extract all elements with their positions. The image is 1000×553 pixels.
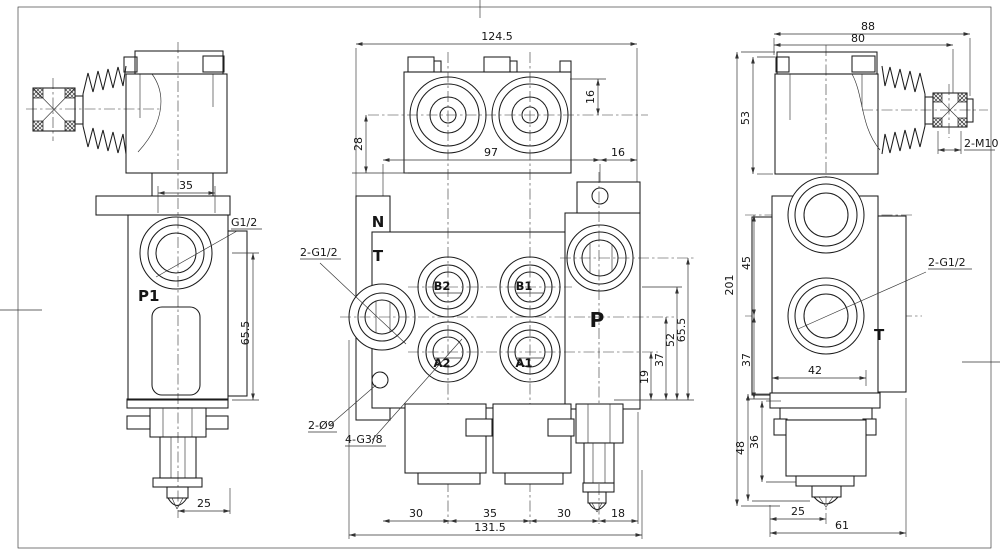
- label-g12: G1/2: [231, 216, 257, 229]
- label-t-right: T: [874, 326, 885, 344]
- dim-25-left: 25: [197, 497, 211, 510]
- dim-35-left: 35: [179, 179, 193, 192]
- relief-valve-side: [127, 399, 228, 509]
- dim-16-vert: 16: [584, 90, 597, 104]
- valve-body-right: [752, 177, 906, 395]
- dim-131-5: 131.5: [474, 521, 506, 534]
- dim-36: 36: [748, 435, 761, 449]
- label-p: P: [590, 308, 605, 332]
- valve-body-side: [96, 196, 247, 400]
- dim-18: 18: [611, 507, 625, 520]
- lever-housing: [124, 51, 227, 196]
- label-2-g12: 2-G1/2: [300, 246, 338, 259]
- bellows: [83, 66, 126, 154]
- label-2-m10: 2-M10: [964, 137, 998, 150]
- label-a1: A1: [516, 356, 533, 370]
- relief-valve-front: [576, 404, 623, 512]
- lever-housing-right: [775, 52, 880, 174]
- left-view: 35 G1/2 P1 65.5 25: [26, 42, 262, 518]
- engineering-drawing-sheet: 35 G1/2 P1 65.5 25 124.5 28 16 97: [0, 0, 1000, 553]
- dim-25-right: 25: [791, 505, 805, 518]
- relief-valve-right: [770, 393, 880, 507]
- dim-65-5-mid: 65.5: [675, 318, 688, 343]
- lever-pivot-section: [33, 88, 83, 131]
- dim-16-horiz: 16: [611, 146, 625, 159]
- dim-61: 61: [835, 519, 849, 532]
- m10-dimension: 2-M10: [938, 131, 998, 154]
- dim-42: 42: [808, 364, 822, 377]
- label-b1: B1: [516, 279, 533, 293]
- right-view: 2-M10 88 80 53 2-G1/2 T: [723, 20, 998, 537]
- dim-30a: 30: [409, 507, 423, 520]
- label-2-g12-right: 2-G1/2: [928, 256, 966, 269]
- dim-37-mid: 37: [653, 353, 666, 367]
- label-4-g38: 4-G3/8: [345, 433, 383, 446]
- dim-201: 201: [723, 275, 736, 296]
- dim-124-5: 124.5: [481, 30, 513, 43]
- dim-35-mid: 35: [483, 507, 497, 520]
- dim-19: 19: [638, 370, 651, 384]
- dim-65-5-left: 65.5: [239, 321, 252, 346]
- dim-37-right: 37: [740, 353, 753, 367]
- label-2-d9: 2-Ø9: [308, 419, 335, 432]
- label-n: N: [372, 213, 385, 231]
- valve-drawing-svg: 35 G1/2 P1 65.5 25 124.5 28 16 97: [0, 0, 1000, 553]
- dim-97: 97: [484, 146, 498, 159]
- spool-caps: [405, 404, 574, 484]
- dim-45: 45: [740, 256, 753, 270]
- dim-48: 48: [734, 441, 747, 455]
- label-p1: P1: [138, 287, 159, 305]
- dim-28: 28: [352, 137, 365, 151]
- dim-30b: 30: [557, 507, 571, 520]
- label-t: T: [373, 247, 384, 265]
- label-b2: B2: [434, 279, 451, 293]
- dim-80: 80: [851, 32, 865, 45]
- dim-53: 53: [739, 111, 752, 125]
